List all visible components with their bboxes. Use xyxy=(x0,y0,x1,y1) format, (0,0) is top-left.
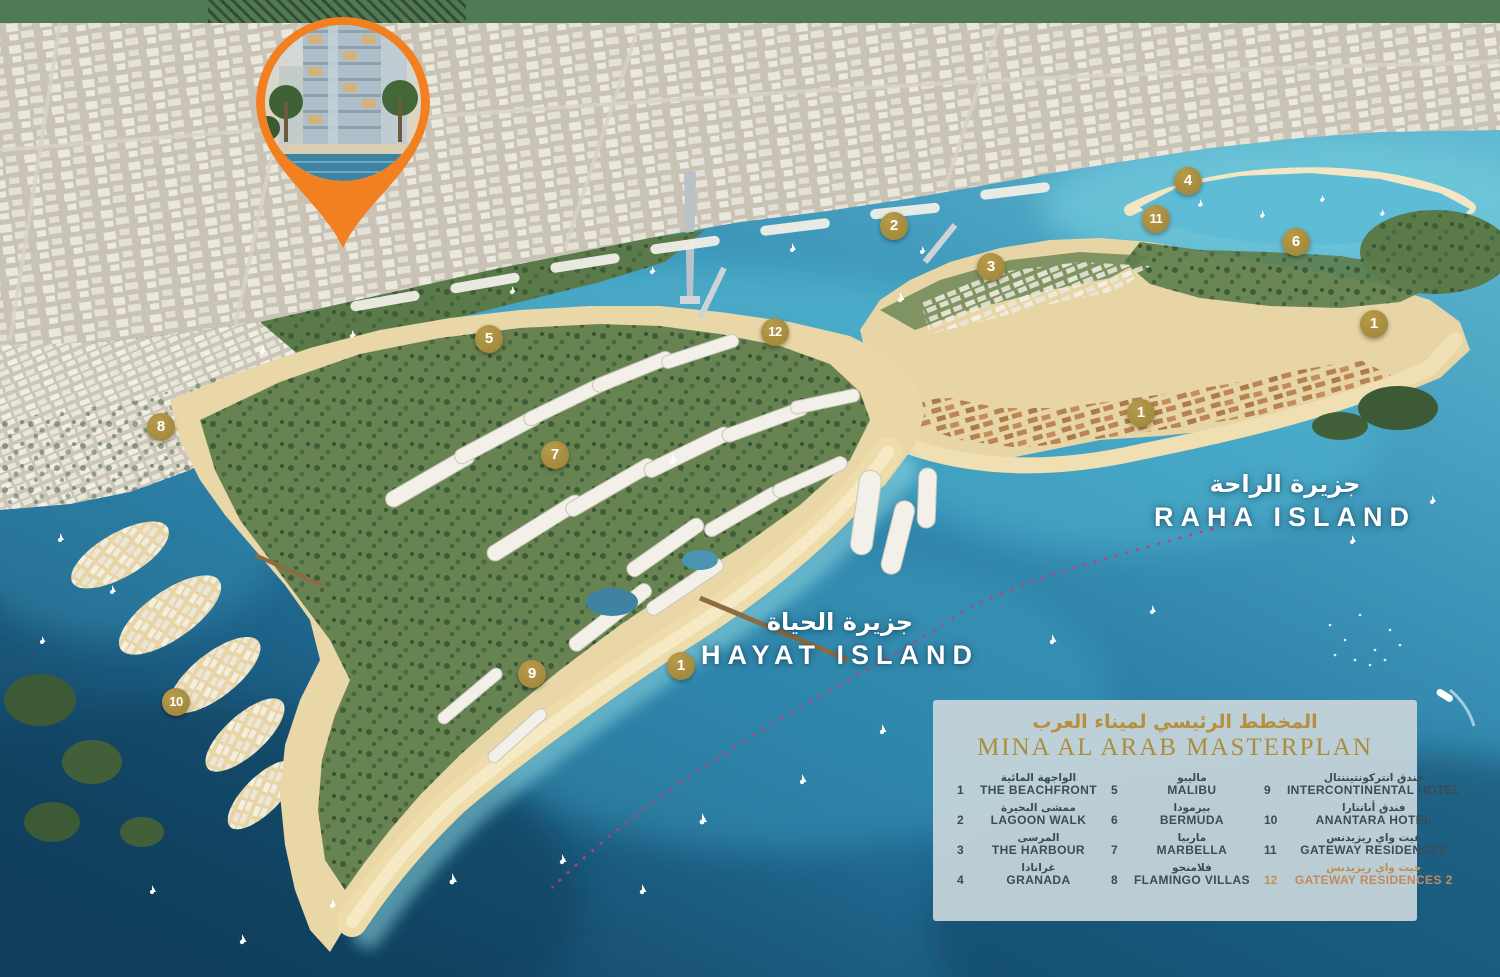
map-marker-1[interactable]: 1 xyxy=(667,652,695,680)
legend-item-english: BERMUDA xyxy=(1134,814,1250,827)
legend-item-number: 6 xyxy=(1111,802,1129,827)
hayat-island-label-en: HAYAT ISLAND xyxy=(660,640,1020,671)
map-marker-1[interactable]: 1 xyxy=(1360,310,1388,338)
legend-items: 1الواجهة المائيةTHE BEACHFRONT2ممشى البح… xyxy=(957,772,1393,892)
legend-item-english: THE BEACHFRONT xyxy=(980,784,1097,797)
raha-island-label-en: RAHA ISLAND xyxy=(1130,502,1440,533)
map-marker-2[interactable]: 2 xyxy=(880,212,908,240)
legend-item-english: LAGOON WALK xyxy=(980,814,1097,827)
legend-item-8: 8فلامنجوFLAMINGO VILLAS xyxy=(1111,862,1250,887)
legend-item-number: 1 xyxy=(957,772,975,797)
map-marker-3[interactable]: 3 xyxy=(977,253,1005,281)
map-marker-9[interactable]: 9 xyxy=(518,660,546,688)
legend-item-number: 2 xyxy=(957,802,975,827)
legend-item-number: 5 xyxy=(1111,772,1129,797)
legend-item-2: 2ممشى البحيرةLAGOON WALK xyxy=(957,802,1097,827)
legend-item-english: MALIBU xyxy=(1134,784,1250,797)
legend-item-english: MARBELLA xyxy=(1134,844,1250,857)
legend-item-number: 4 xyxy=(957,862,975,887)
top-strip xyxy=(0,0,1500,23)
legend-item-3: 3المرسىTHE HARBOUR xyxy=(957,832,1097,857)
legend-item-english: GRANADA xyxy=(980,874,1097,887)
map-marker-4[interactable]: 4 xyxy=(1174,167,1202,195)
legend-item-number: 9 xyxy=(1264,772,1282,797)
legend-item-11: 11غيت واي ريزيدنسGATEWAY RESIDENCES xyxy=(1264,832,1461,857)
legend-item-7: 7ماربياMARBELLA xyxy=(1111,832,1250,857)
map-marker-11[interactable]: 11 xyxy=(1142,205,1170,233)
raha-island-label-ar: جزيرة الراحة xyxy=(1130,470,1440,498)
legend-column: 9فندق انتركونتيننتالINTERCONTINENTAL HOT… xyxy=(1264,772,1461,892)
legend-title-english: MINA AL ARAB MASTERPLAN xyxy=(957,734,1393,762)
location-pin[interactable] xyxy=(248,6,438,252)
legend-item-number: 7 xyxy=(1111,832,1129,857)
legend-item-english: FLAMINGO VILLAS xyxy=(1134,874,1250,887)
legend-title-arabic: المخطط الرئيسي لميناء العرب xyxy=(957,711,1393,733)
legend-item-english: GATEWAY RESIDENCES 2 xyxy=(1287,874,1461,887)
legend-item-number: 10 xyxy=(1264,802,1282,827)
map-marker-7[interactable]: 7 xyxy=(541,441,569,469)
legend-item-6: 6بيرموداBERMUDA xyxy=(1111,802,1250,827)
legend-item-5: 5ماليبوMALIBU xyxy=(1111,772,1250,797)
map-marker-10[interactable]: 10 xyxy=(162,688,190,716)
legend-item-4: 4غراناداGRANADA xyxy=(957,862,1097,887)
legend-item-12: 12جيت واي ريزيدنسGATEWAY RESIDENCES 2 xyxy=(1264,862,1461,887)
hayat-island-label-ar: جزيرة الحياة xyxy=(660,608,1020,636)
legend-item-number: 12 xyxy=(1264,862,1282,887)
legend-item-english: GATEWAY RESIDENCES xyxy=(1287,844,1461,857)
legend-item-1: 1الواجهة المائيةTHE BEACHFRONT xyxy=(957,772,1097,797)
legend-item-english: INTERCONTINENTAL HOTEL xyxy=(1287,784,1461,797)
masterplan-map: جزيرة الراحة RAHA ISLAND جزيرة الحياة HA… xyxy=(0,0,1500,977)
legend-item-number: 11 xyxy=(1264,832,1282,857)
map-marker-8[interactable]: 8 xyxy=(147,413,175,441)
map-marker-12[interactable]: 12 xyxy=(761,318,789,346)
legend-item-english: ANANTARA HOTEL xyxy=(1287,814,1461,827)
legend-column: 1الواجهة المائيةTHE BEACHFRONT2ممشى البح… xyxy=(957,772,1097,892)
legend-item-english: THE HARBOUR xyxy=(980,844,1097,857)
legend-item-number: 3 xyxy=(957,832,975,857)
legend-item-10: 10فندق أنانتاراANANTARA HOTEL xyxy=(1264,802,1461,827)
legend-item-number: 8 xyxy=(1111,862,1129,887)
raha-island-label: جزيرة الراحة RAHA ISLAND xyxy=(1130,470,1440,533)
masterplan-legend: المخطط الرئيسي لميناء العرب MINA AL ARAB… xyxy=(933,700,1417,921)
map-marker-1[interactable]: 1 xyxy=(1127,399,1155,427)
map-marker-6[interactable]: 6 xyxy=(1282,228,1310,256)
legend-column: 5ماليبوMALIBU6بيرموداBERMUDA7ماربياMARBE… xyxy=(1111,772,1250,892)
map-marker-5[interactable]: 5 xyxy=(475,325,503,353)
legend-item-9: 9فندق انتركونتيننتالINTERCONTINENTAL HOT… xyxy=(1264,772,1461,797)
hayat-island-label: جزيرة الحياة HAYAT ISLAND xyxy=(660,608,1020,671)
